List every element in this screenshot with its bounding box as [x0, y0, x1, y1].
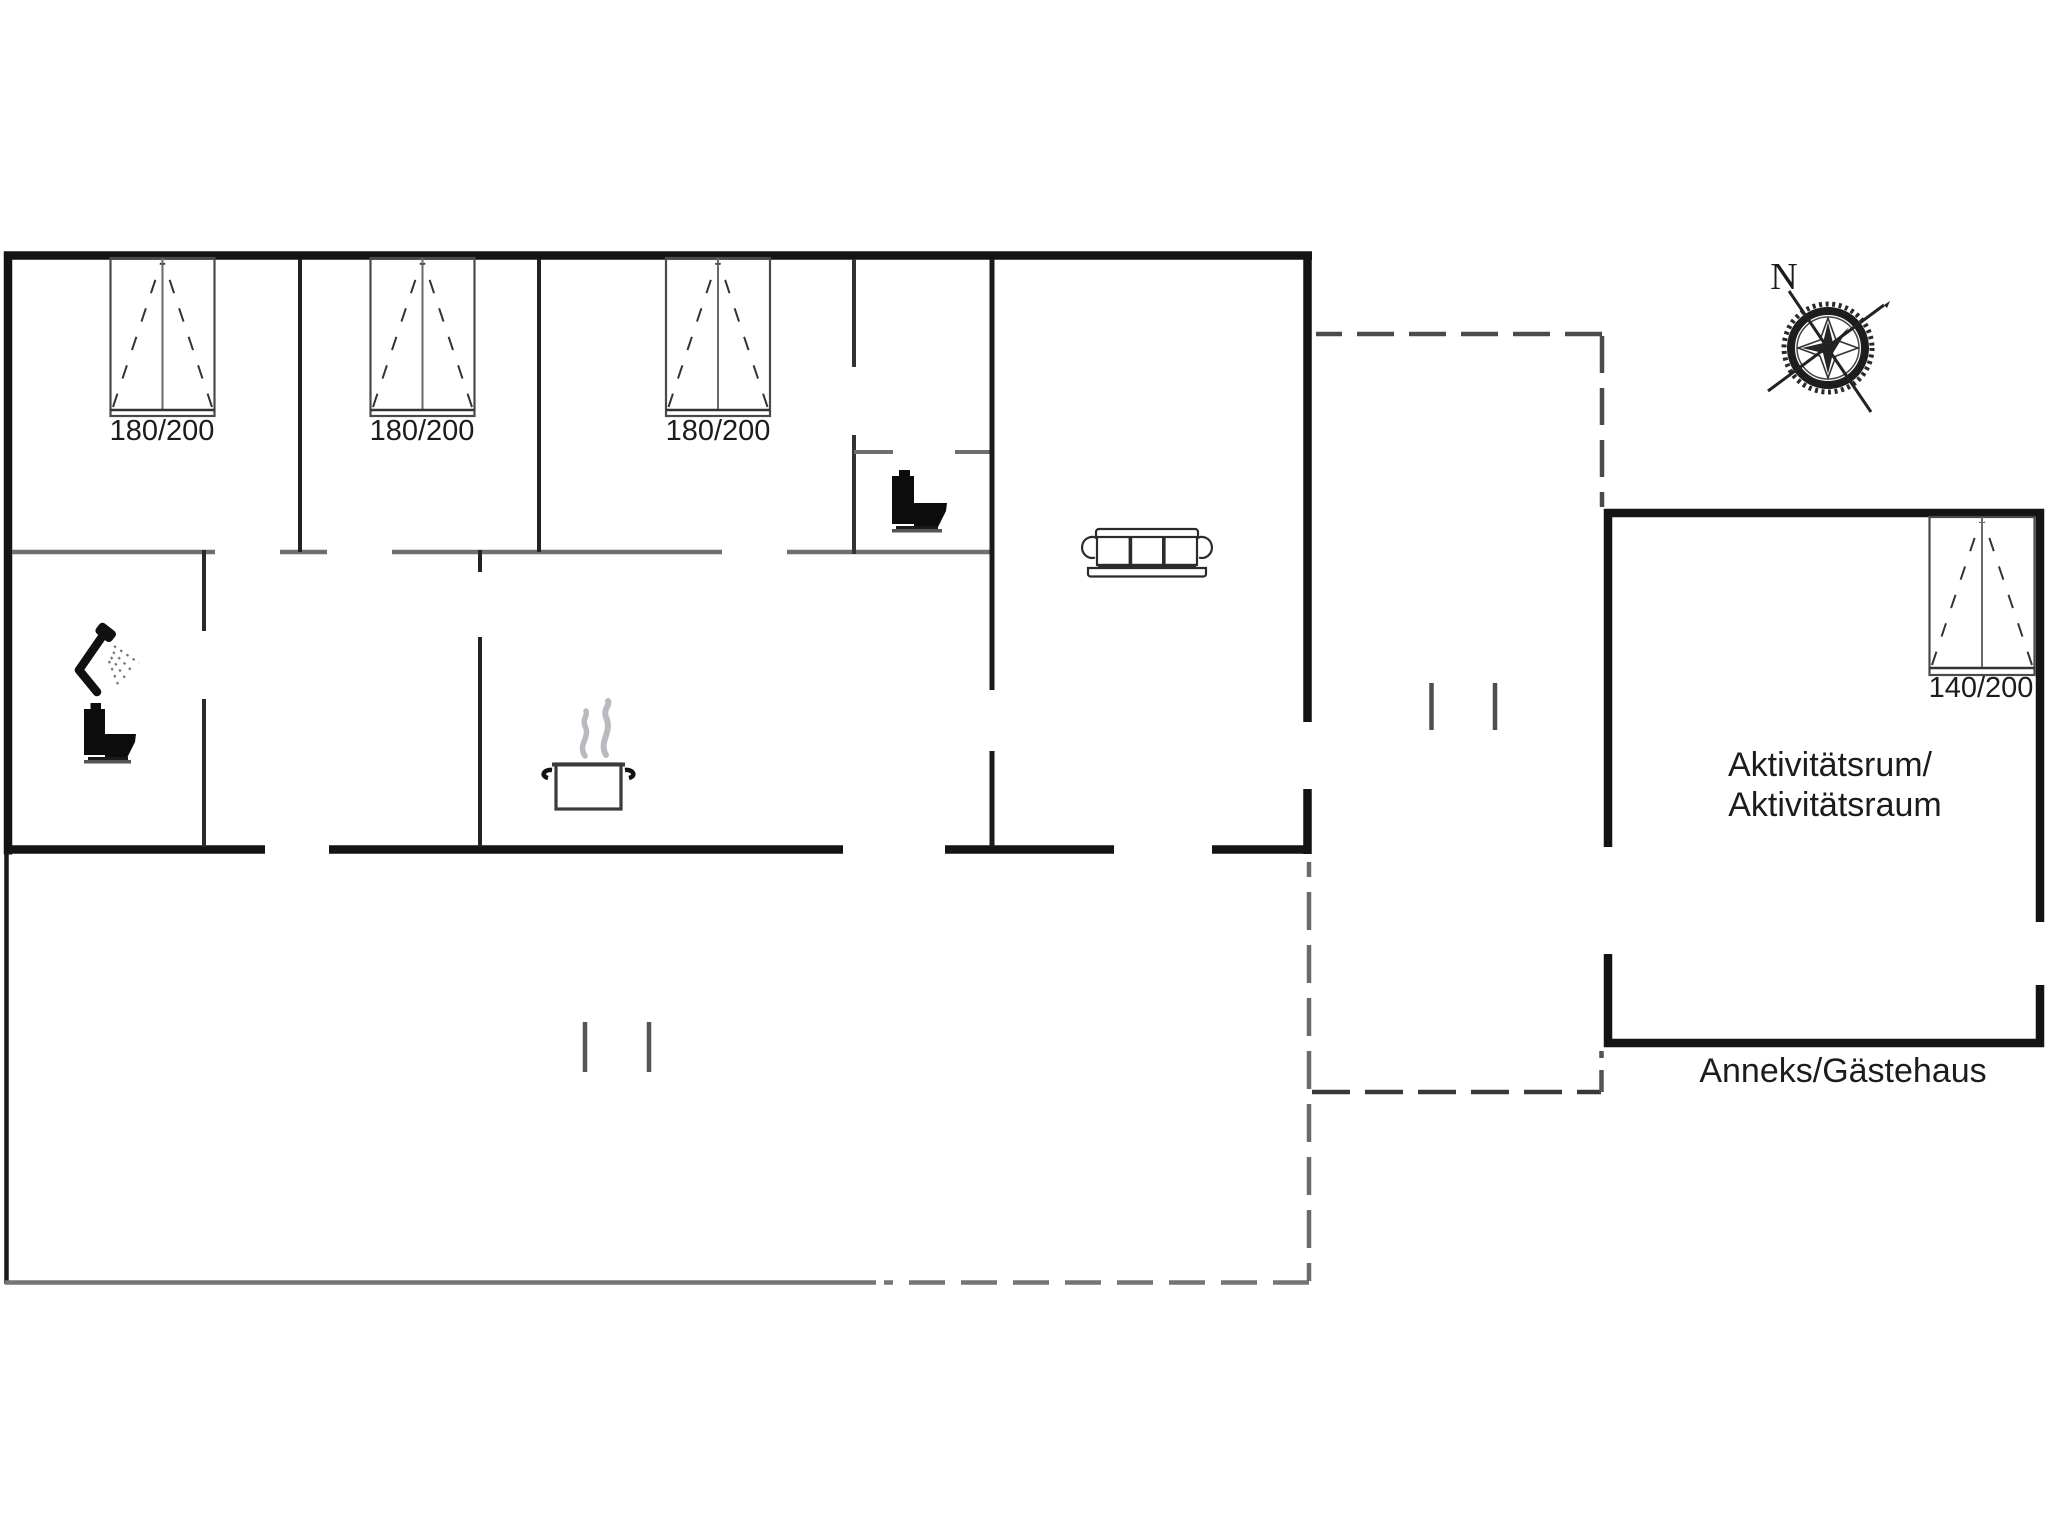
svg-text:Aktivitätsraum: Aktivitätsraum [1728, 786, 1942, 824]
svg-text:180/200: 180/200 [370, 415, 475, 447]
svg-text:140/200: 140/200 [1929, 672, 2034, 704]
svg-text:180/200: 180/200 [666, 415, 771, 447]
svg-text:Aktivitätsrum/: Aktivitätsrum/ [1728, 746, 1933, 784]
svg-text:N: N [1770, 256, 1797, 298]
svg-text:180/200: 180/200 [110, 415, 215, 447]
svg-text:Anneks/Gästehaus: Anneks/Gästehaus [1699, 1052, 1986, 1090]
